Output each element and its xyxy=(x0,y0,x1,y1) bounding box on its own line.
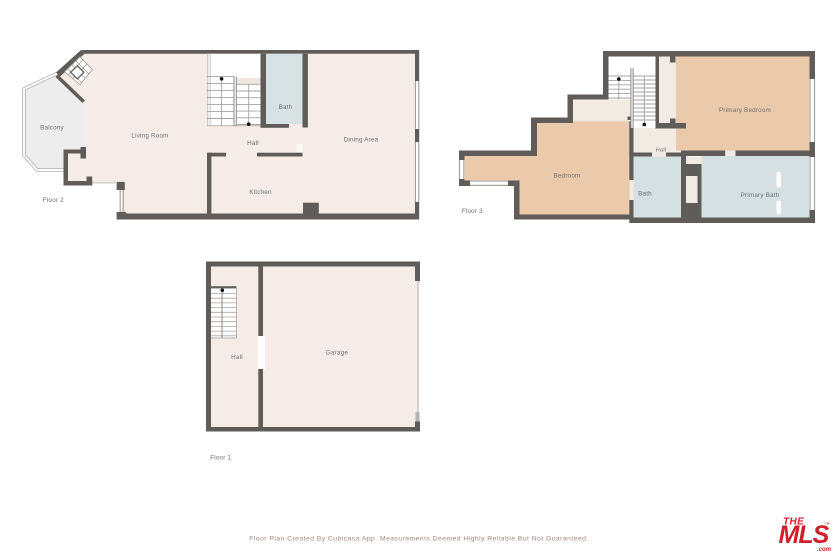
svg-text:Garage: Garage xyxy=(326,349,349,356)
svg-text:Dining Area: Dining Area xyxy=(344,136,379,143)
svg-text:Bedroom: Bedroom xyxy=(554,172,581,179)
svg-text:Kitchen: Kitchen xyxy=(249,189,272,196)
svg-text:Primary Bath: Primary Bath xyxy=(741,192,780,199)
svg-text:Hall: Hall xyxy=(231,354,243,361)
svg-text:Living Room: Living Room xyxy=(131,133,168,140)
svg-text:Hall: Hall xyxy=(247,140,259,147)
svg-text:Bath: Bath xyxy=(638,190,652,197)
svg-text:Floor Plan Created By Cubicasa: Floor Plan Created By Cubicasa App. Meas… xyxy=(249,536,588,543)
svg-text:Hall: Hall xyxy=(656,147,666,153)
svg-text:Floor 2: Floor 2 xyxy=(43,197,64,204)
svg-text:Bath: Bath xyxy=(279,104,293,111)
svg-text:™: ™ xyxy=(825,522,830,528)
svg-text:MLS: MLS xyxy=(779,521,830,549)
svg-text:Floor 1: Floor 1 xyxy=(210,454,231,461)
svg-text:Primary Bedroom: Primary Bedroom xyxy=(719,107,771,114)
svg-text:Balcony: Balcony xyxy=(40,125,64,132)
svg-text:.com: .com xyxy=(817,547,832,553)
svg-text:Floor 3: Floor 3 xyxy=(462,208,483,215)
